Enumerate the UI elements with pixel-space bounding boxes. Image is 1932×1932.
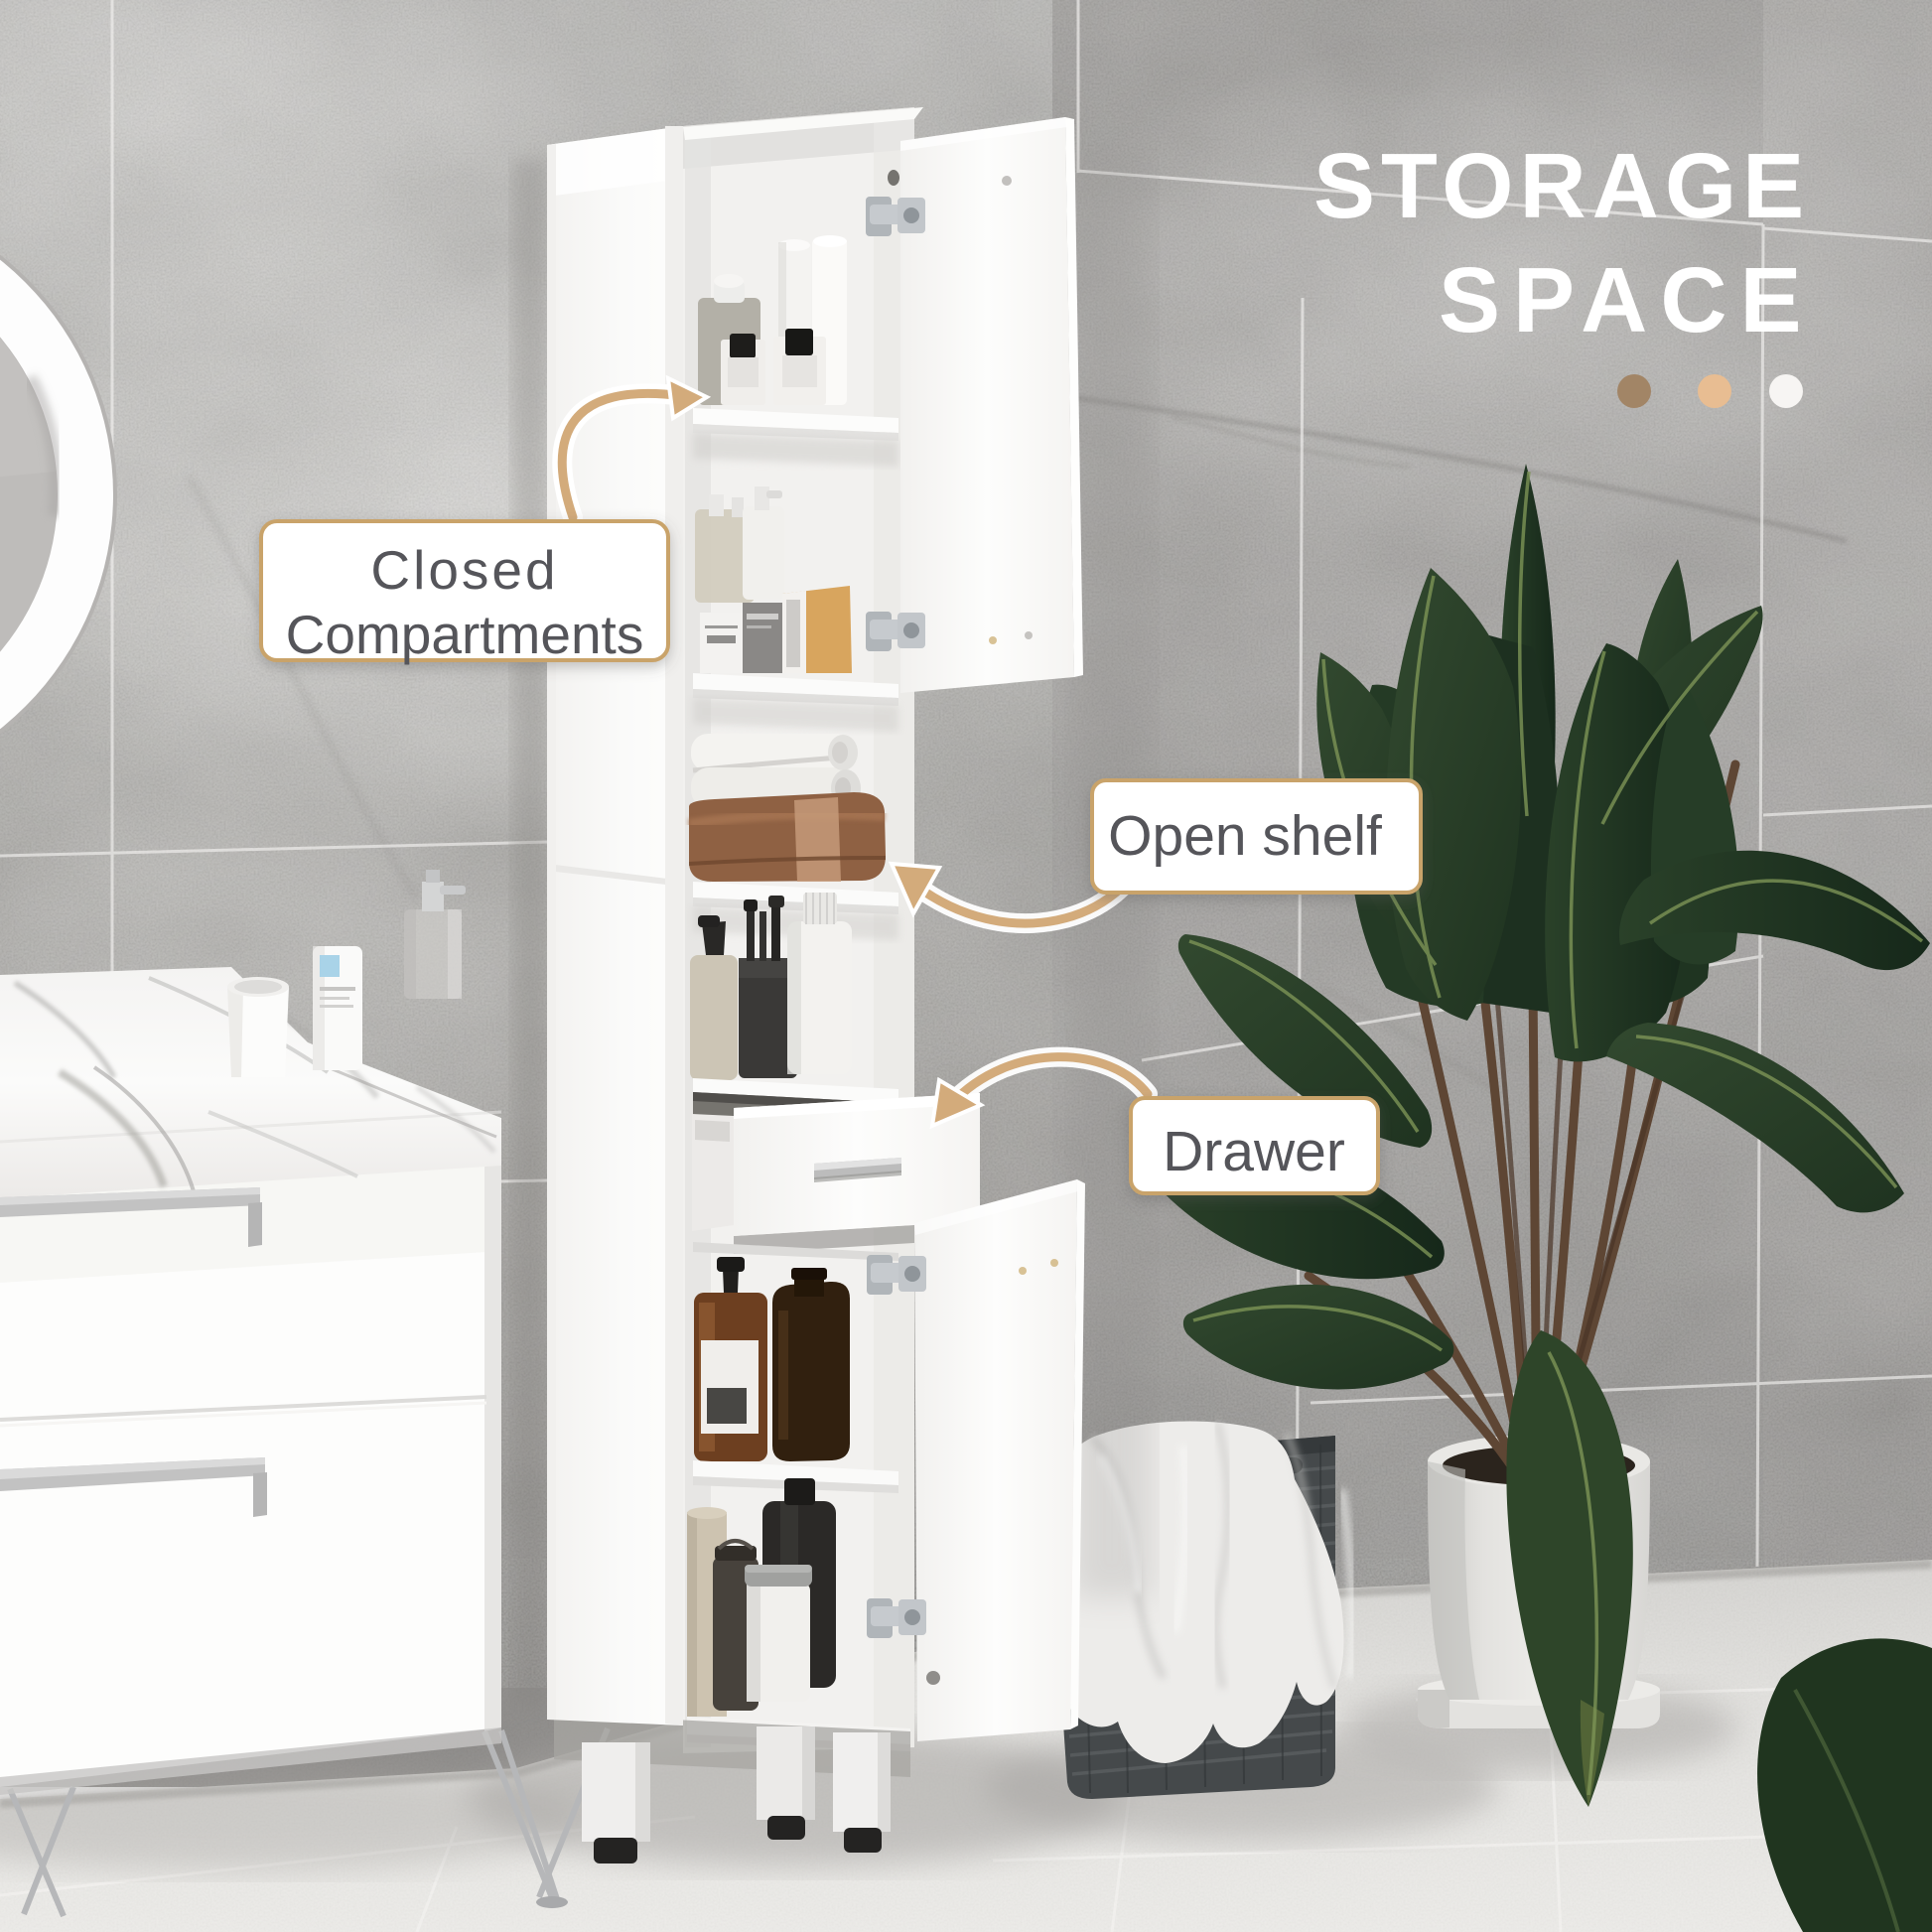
svg-text:STORAGE: STORAGE — [1313, 134, 1810, 237]
svg-text:SPACE: SPACE — [1439, 248, 1815, 351]
svg-text:Compartments: Compartments — [286, 604, 644, 665]
svg-text:Drawer: Drawer — [1163, 1120, 1345, 1183]
svg-text:Closed: Closed — [370, 539, 558, 601]
svg-text:Open shelf: Open shelf — [1108, 804, 1382, 868]
